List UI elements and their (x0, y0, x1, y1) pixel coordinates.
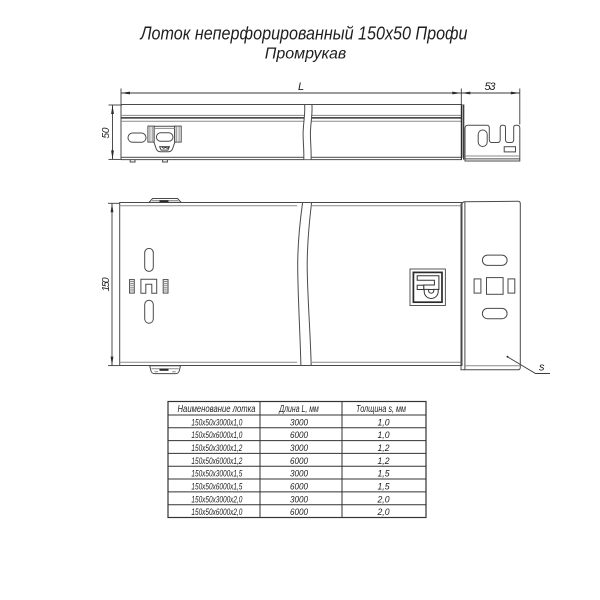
svg-text:6000: 6000 (290, 456, 309, 466)
svg-text:6000: 6000 (290, 482, 309, 492)
svg-text:Промрукав: Промрукав (265, 46, 347, 63)
svg-text:3000: 3000 (290, 443, 309, 453)
svg-text:1,2: 1,2 (378, 456, 390, 466)
svg-text:50: 50 (101, 127, 112, 138)
svg-text:150х50х6000х2,0: 150х50х6000х2,0 (191, 507, 243, 517)
svg-text:150х50х6000х1,0: 150х50х6000х1,0 (191, 430, 243, 440)
svg-text:150х50х6000х1,5: 150х50х6000х1,5 (191, 482, 243, 492)
svg-text:2,0: 2,0 (377, 494, 391, 504)
svg-text:1,5: 1,5 (378, 469, 391, 479)
svg-text:150х50х3000х2,0: 150х50х3000х2,0 (191, 494, 243, 504)
svg-text:3000: 3000 (290, 494, 309, 504)
svg-text:6000: 6000 (290, 507, 309, 517)
svg-text:1,0: 1,0 (378, 430, 391, 440)
svg-text:150: 150 (101, 277, 112, 291)
svg-text:53: 53 (485, 81, 497, 93)
svg-text:1,2: 1,2 (378, 443, 390, 453)
svg-text:3000: 3000 (290, 417, 309, 427)
svg-text:150х50х3000х1,0: 150х50х3000х1,0 (191, 417, 243, 427)
svg-text:2,0: 2,0 (377, 507, 391, 517)
svg-text:3000: 3000 (290, 469, 309, 479)
svg-text:1,5: 1,5 (378, 482, 391, 492)
svg-text:Лоток неперфорированный 150х50: Лоток неперфорированный 150х50 Профи (140, 24, 468, 44)
svg-text:150х50х3000х1,2: 150х50х3000х1,2 (191, 443, 242, 453)
svg-text:6000: 6000 (290, 430, 309, 440)
svg-text:150х50х6000х1,2: 150х50х6000х1,2 (191, 456, 242, 466)
svg-text:1,0: 1,0 (378, 417, 391, 427)
svg-text:Толщина s, мм: Толщина s, мм (356, 404, 406, 415)
svg-text:Наименование лотка: Наименование лотка (178, 404, 256, 415)
svg-text:s: s (539, 362, 545, 374)
svg-text:Длина L, мм: Длина L, мм (279, 404, 319, 415)
svg-text:L: L (298, 81, 304, 93)
svg-text:150х50х3000х1,5: 150х50х3000х1,5 (191, 469, 243, 479)
